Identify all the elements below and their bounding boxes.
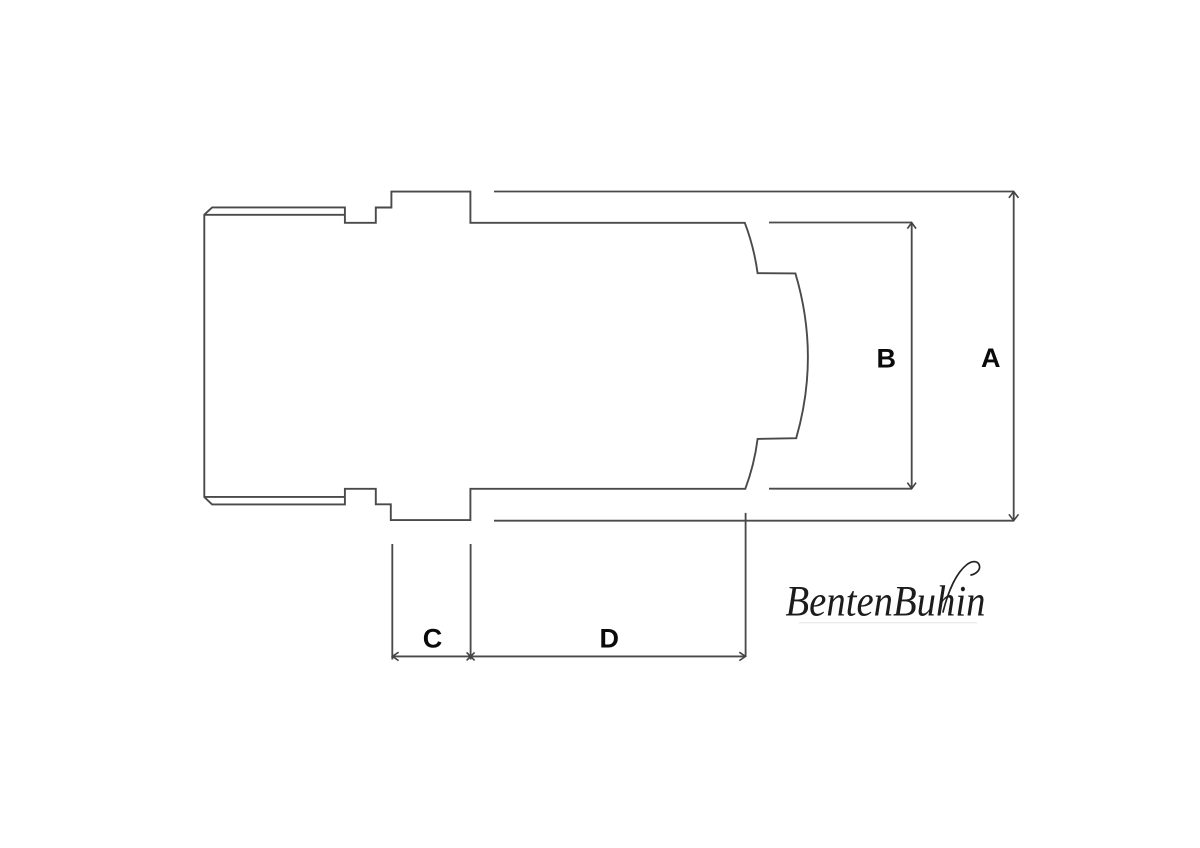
svg-text:C: C [423, 623, 443, 653]
svg-text:BentenBuhin: BentenBuhin [786, 578, 986, 625]
svg-text:D: D [600, 623, 620, 653]
svg-text:B: B [876, 343, 896, 373]
svg-text:A: A [981, 343, 1001, 373]
